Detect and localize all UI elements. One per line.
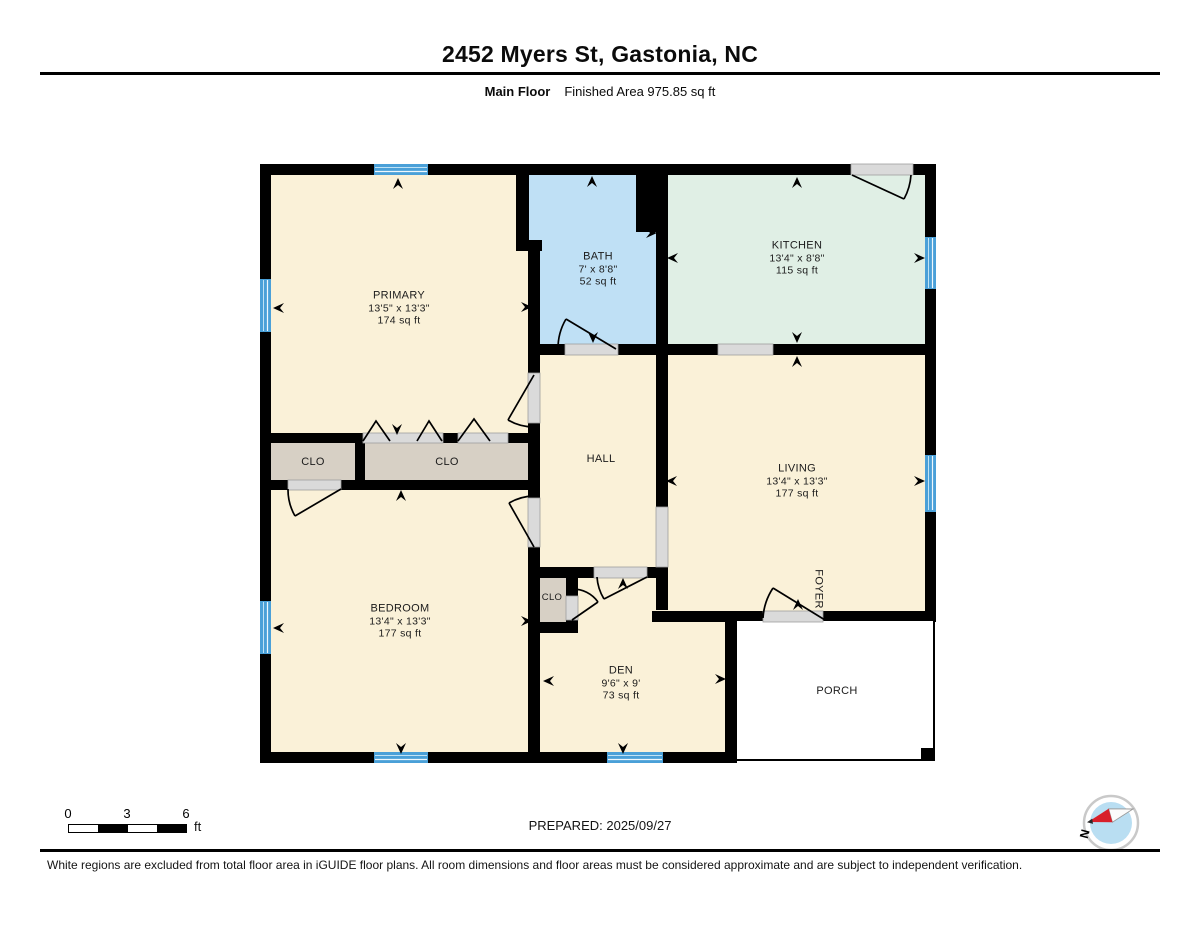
window bbox=[260, 279, 271, 332]
lower-floor-fill bbox=[264, 600, 732, 758]
window bbox=[607, 752, 663, 763]
room-label-closet-middle: CLO bbox=[435, 456, 459, 469]
room-label-hall: HALL bbox=[587, 453, 616, 466]
room-label-foyer: FOYER bbox=[812, 569, 825, 608]
room-label-porch: PORCH bbox=[816, 685, 857, 698]
footer-divider bbox=[40, 849, 1160, 852]
floorplan-page: 2452 Myers St, Gastonia, NC Main FloorFi… bbox=[0, 0, 1200, 927]
window bbox=[925, 237, 936, 289]
room-label-bedroom: BEDROOM 13'4" x 13'3" 177 sq ft bbox=[369, 602, 431, 640]
disclaimer-text: White regions are excluded from total fl… bbox=[47, 858, 1022, 872]
scale-tick-6: 6 bbox=[178, 806, 194, 821]
scale-unit-label: ft bbox=[194, 819, 201, 834]
window bbox=[374, 164, 428, 175]
porch-post bbox=[921, 748, 934, 761]
window bbox=[925, 455, 936, 512]
scale-bar bbox=[68, 824, 187, 833]
scale-tick-3: 3 bbox=[119, 806, 135, 821]
prepared-date-label: PREPARED: 2025/09/27 bbox=[529, 818, 672, 833]
room-label-closet-small: CLO bbox=[542, 592, 562, 605]
room-label-kitchen: KITCHEN 13'4" x 8'8" 115 sq ft bbox=[769, 239, 824, 277]
window bbox=[260, 601, 271, 654]
scale-tick-0: 0 bbox=[60, 806, 76, 821]
room-label-living: LIVING 13'4" x 13'3" 177 sq ft bbox=[766, 462, 828, 500]
room-label-closet-left: CLO bbox=[301, 456, 325, 469]
room-label-primary: PRIMARY 13'5" x 13'3" 174 sq ft bbox=[368, 289, 430, 327]
room-label-den: DEN 9'6" x 9' 73 sq ft bbox=[601, 664, 640, 702]
room-label-bath: BATH 7' x 8'8" 52 sq ft bbox=[578, 250, 617, 288]
